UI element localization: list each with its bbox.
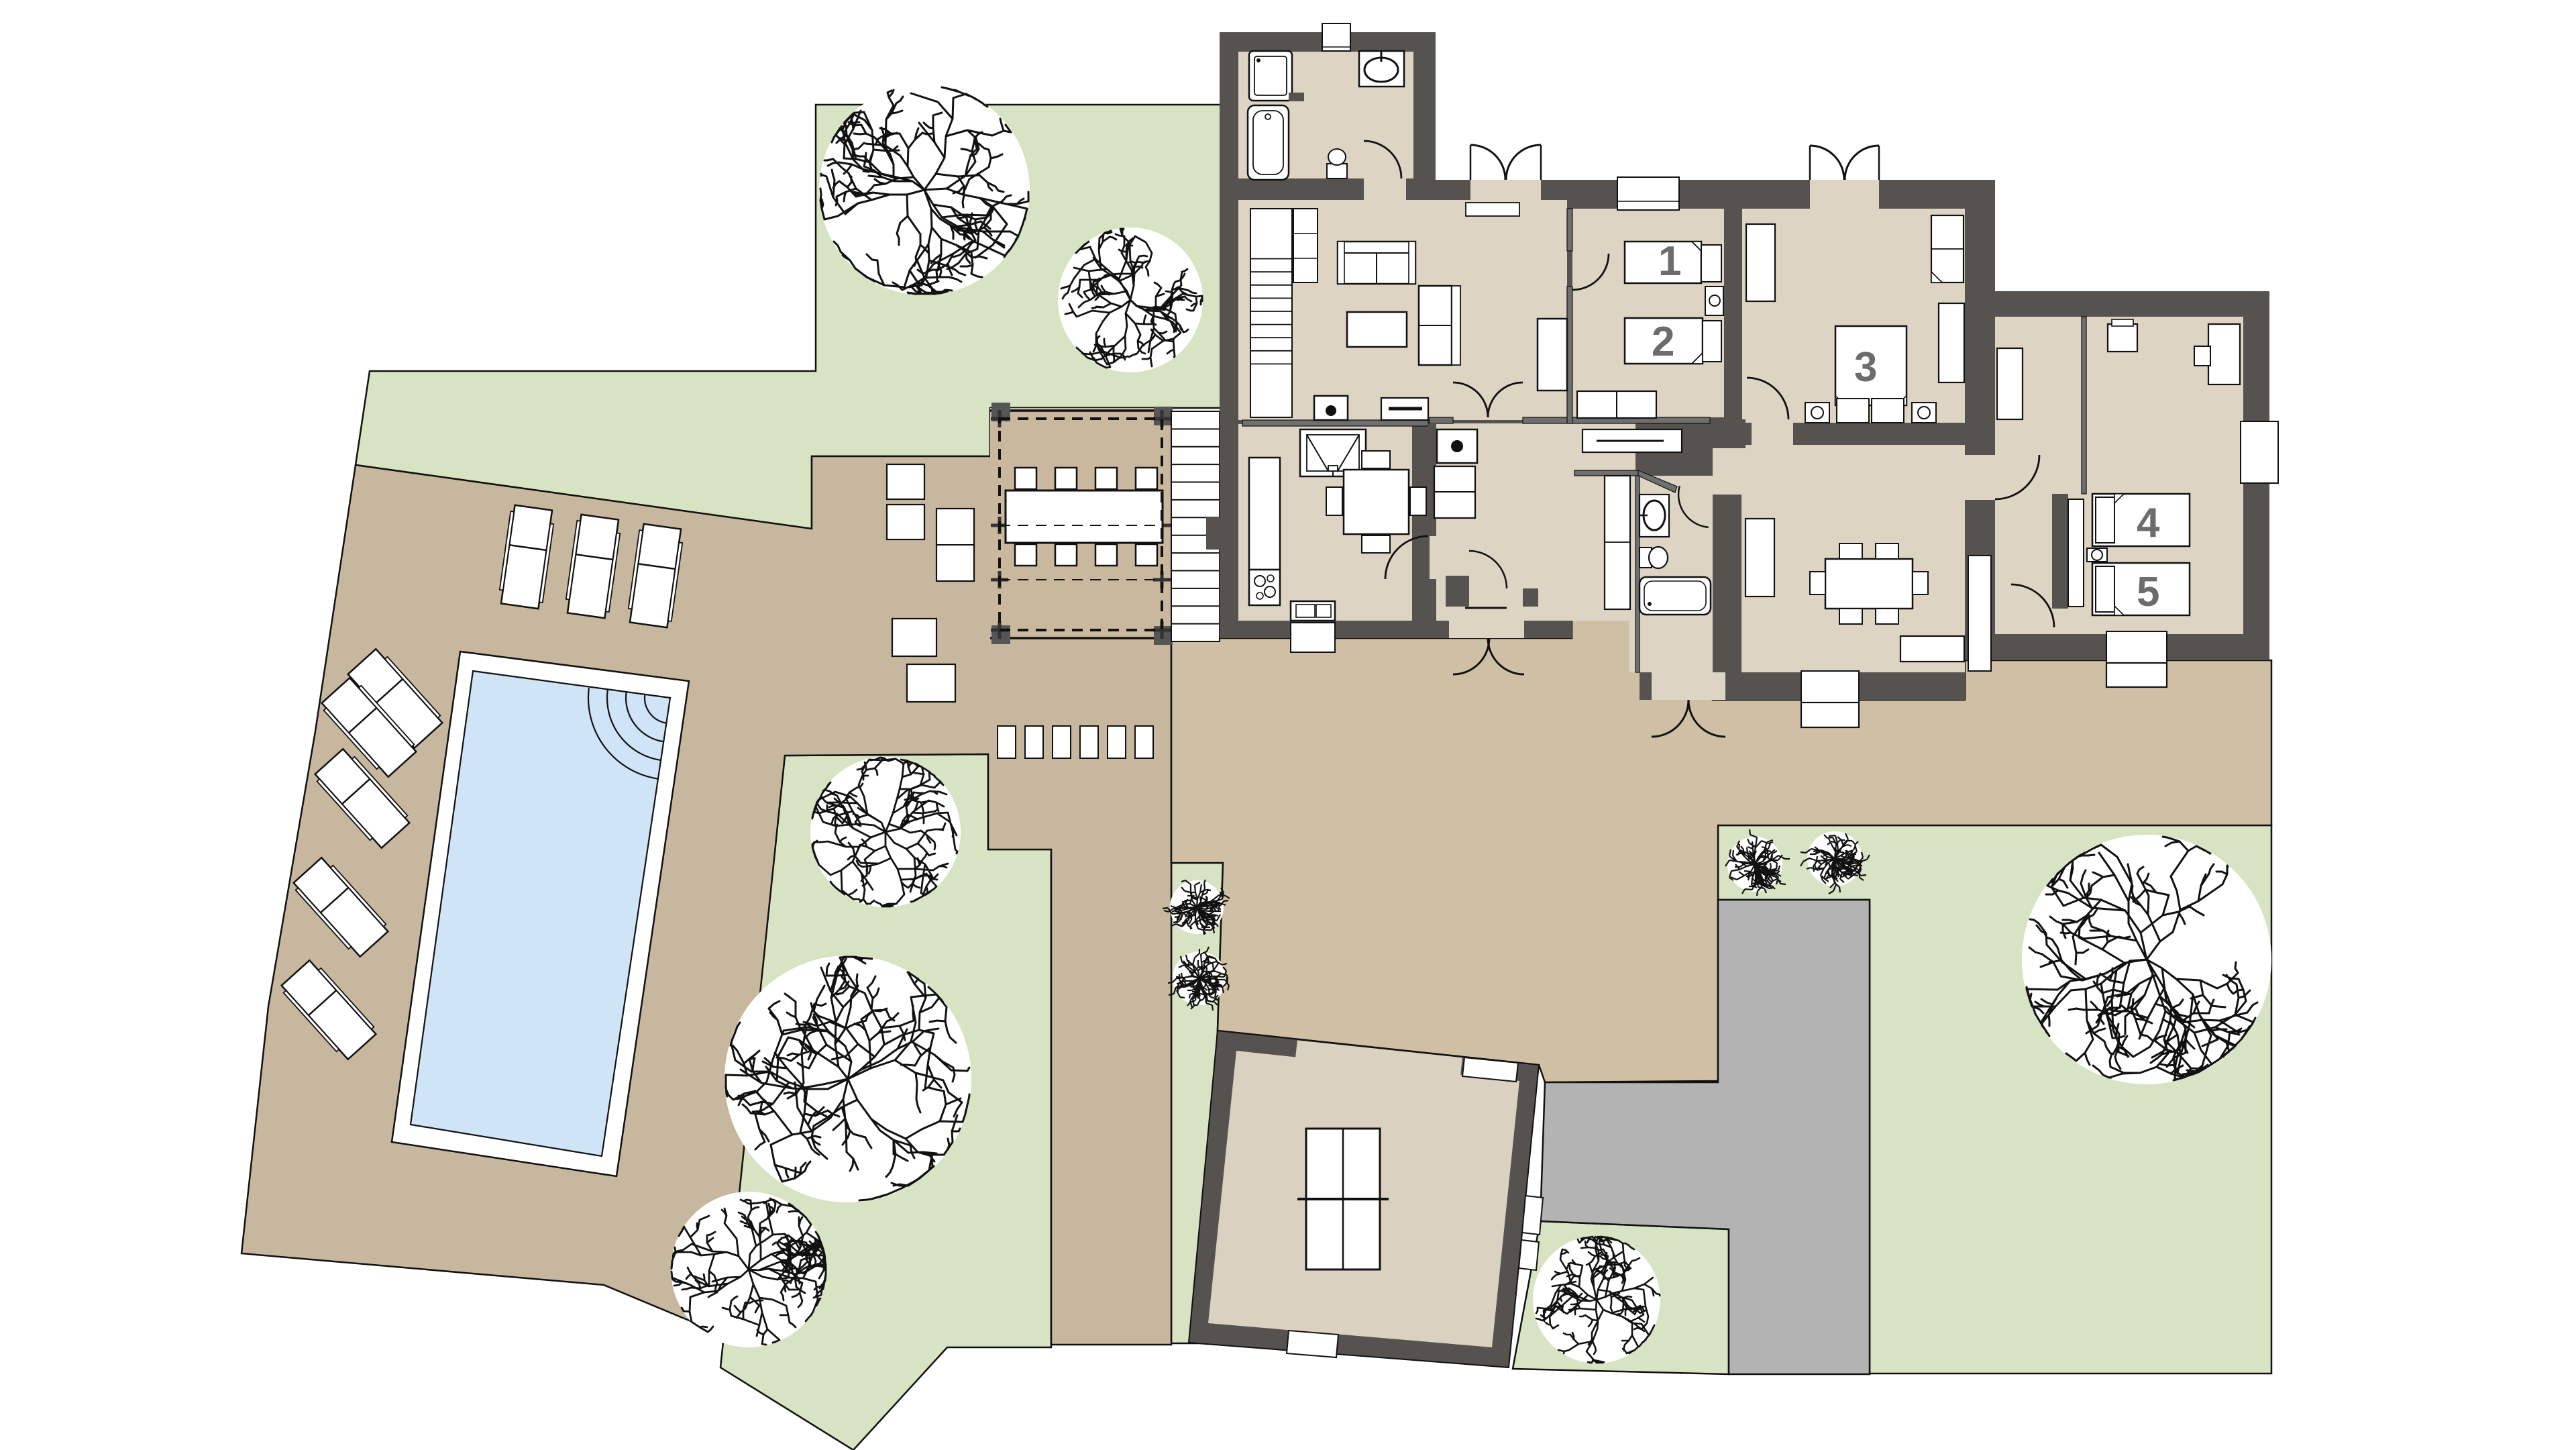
svg-text:3: 3 xyxy=(1854,344,1877,391)
svg-text:4: 4 xyxy=(2137,500,2160,546)
svg-text:2: 2 xyxy=(1652,319,1674,365)
svg-text:1: 1 xyxy=(1658,238,1681,284)
svg-text:5: 5 xyxy=(2137,569,2159,615)
